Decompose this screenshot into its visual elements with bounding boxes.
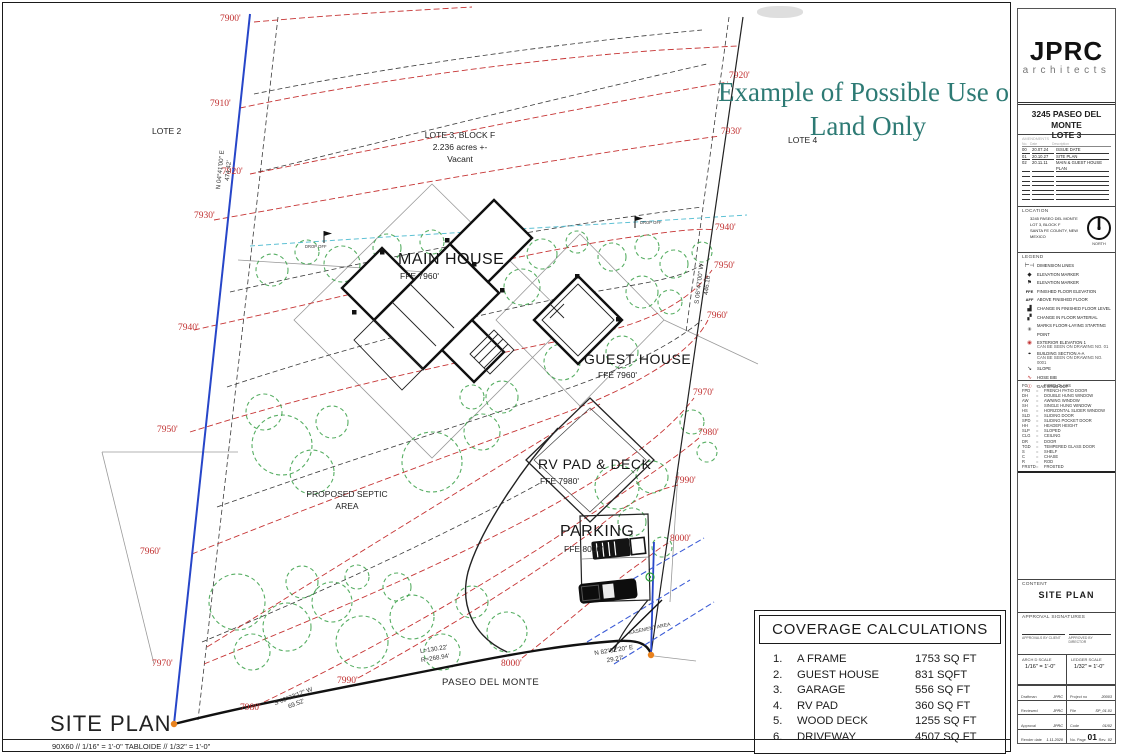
north-arrow-icon xyxy=(1086,215,1112,241)
lot3-label: LOTE 3, BLOCK F xyxy=(425,130,495,140)
rv-pad-label: RV PAD & DECK xyxy=(538,456,652,472)
main-house-ffe: FFE 7960' xyxy=(400,271,439,281)
abbreviation-row: FRSTD=FROSTED xyxy=(1022,464,1111,469)
bearing-southeast: N 82°52'20" E 29.27' xyxy=(594,643,635,666)
legend-item: ▟CHANGE IN FINISHED FLOOR LEVEL xyxy=(1022,305,1111,314)
legend-item: ⊢⊣DIMENSION LINES xyxy=(1022,262,1111,271)
legend-label: DIMENSION LINES xyxy=(1037,262,1074,271)
main-house-footprint xyxy=(342,200,532,390)
legend-item: ✳MARKS FLOOR-LAYING STARTING POINT xyxy=(1022,322,1111,339)
legend-label: MARKS FLOOR-LAYING STARTING POINT xyxy=(1037,322,1111,339)
contour-label: 7930' xyxy=(194,211,215,221)
page-number-row: No. Page 01 Rev. 02 xyxy=(1067,729,1115,744)
field-label: Approval xyxy=(1021,724,1036,728)
street-label: PASEO DEL MONTE xyxy=(442,677,539,688)
project-title: 3245 PASEO DEL MONTE LOTE 3 xyxy=(1018,105,1115,135)
firm-name: JPRC xyxy=(1030,36,1103,67)
amend-col-no: No. xyxy=(1022,142,1030,146)
coverage-row-area: 360 SQ FT xyxy=(915,699,1001,715)
scale2-label: LEDGER SCALE xyxy=(1071,657,1111,662)
field-row: ReviewedJPRC xyxy=(1018,700,1066,715)
coverage-row: 5.WOOD DECK1255 SQ FT xyxy=(759,714,1001,730)
field-value: 1.11.2020 xyxy=(1046,738,1063,742)
field-label: File xyxy=(1070,709,1076,713)
amendment-row: 0220.11.11MAIN & GUEST HOUSE PLAN xyxy=(1022,160,1111,172)
legend-item: ⚑ELEVATION MARKER xyxy=(1022,279,1111,288)
elevation-marker-alt-icon: ⚑ xyxy=(1022,279,1037,288)
coverage-row-item: A FRAME xyxy=(797,652,915,668)
bearing-southwest: S 69°23'12" W 69.52' xyxy=(273,685,317,715)
elevation-marker-icon: ◆ xyxy=(1022,271,1037,280)
contour-label: 7960' xyxy=(140,547,161,557)
field-value: JPRC xyxy=(1053,695,1063,699)
field-label: Draftman xyxy=(1021,695,1037,699)
content-title: CONTENT xyxy=(1022,582,1111,587)
coverage-row-area: 1753 SQ FT xyxy=(915,652,1001,668)
scale2-value: 1/32" = 1'-0" xyxy=(1074,664,1111,670)
contour-label: 8000' xyxy=(670,534,691,544)
amend-desc: SITE PLAN xyxy=(1056,154,1109,161)
amend-desc: MAIN & GUEST HOUSE PLAN xyxy=(1056,160,1109,172)
legend-label: ELEVATION MARKER xyxy=(1037,279,1079,288)
abbr-eq: = xyxy=(1036,464,1044,469)
rev-value: 02 xyxy=(1108,738,1112,742)
sheet-title: SITE PLAN xyxy=(50,711,171,737)
field-label: Code xyxy=(1070,724,1079,728)
bearing-length: 446.16' xyxy=(703,274,712,295)
contour-label: 7960' xyxy=(707,311,728,321)
amend-no: 00 xyxy=(1022,147,1030,154)
legend-sublabel: CAN BE SEEN ON DRAWING NO. 0001 xyxy=(1037,355,1102,365)
content-block: CONTENT SITE PLAN xyxy=(1018,579,1115,613)
aff-abbreviation: AFF xyxy=(1022,296,1037,305)
building-section-icon: ⌖ xyxy=(1022,352,1037,357)
contour-label: 7900' xyxy=(220,14,241,24)
smudge-artifact xyxy=(757,6,803,18)
amend-date: 20.07.24 xyxy=(1032,147,1054,154)
legend-label: FINISHED FLOOR ELEVATION xyxy=(1037,288,1096,297)
north-arrow: NORTH xyxy=(1086,215,1112,246)
coverage-row-number: 3. xyxy=(773,683,797,699)
legend-label: CHANGE IN FLOOR MATERIAL xyxy=(1037,314,1098,323)
lot3-acreage: 2.236 acres +- xyxy=(433,142,488,152)
floor-material-change-icon: ▞ xyxy=(1022,314,1037,323)
ffe-abbreviation: FFE xyxy=(1022,288,1037,297)
legend-item: ▞CHANGE IN FLOOR MATERIAL xyxy=(1022,314,1111,323)
legend-sublabel: CAN BE SEEN ON DRAWING NO. 01 xyxy=(1037,344,1108,349)
field-value: JPRC xyxy=(1053,724,1063,728)
coverage-row-item: WOOD DECK xyxy=(797,714,915,730)
legend-label: ELEVATION MARKER xyxy=(1037,271,1079,280)
approval-title: APPROVAL SIGNATURES xyxy=(1022,615,1111,620)
coverage-title: COVERAGE CALCULATIONS xyxy=(759,615,1001,644)
field-label: Render date xyxy=(1021,738,1042,742)
drop-off-flag: DROP OFF xyxy=(635,216,662,228)
guest-house-ffe: FFE 7960' xyxy=(598,370,637,380)
exterior-elevation-icon: ◉ xyxy=(1022,341,1037,346)
location-county: SANTA FE COUNTY, NEW MEXICO xyxy=(1030,228,1085,240)
coverage-row-item: GUEST HOUSE xyxy=(797,668,915,684)
firm-logo: JPRC architects xyxy=(1018,9,1115,105)
coverage-row: 4.RV PAD360 SQ FT xyxy=(759,699,1001,715)
drop-off-label: DROP OFF xyxy=(640,220,662,225)
coverage-row-area: 4507 SQ FT xyxy=(915,730,1001,746)
coverage-row-area: 831 SQFT xyxy=(915,668,1001,684)
property-boundaries xyxy=(171,14,743,727)
abbr-value: FROSTED xyxy=(1044,464,1111,469)
amendment-row: 0020.07.24ISSUE DATE xyxy=(1022,147,1111,154)
title-block: JPRC architects 3245 PASEO DEL MONTE LOT… xyxy=(1010,2,1123,752)
legend-label: ABOVE FINISHED FLOOR xyxy=(1037,296,1088,305)
amend-date: 20.11.11 xyxy=(1032,160,1054,172)
north-label: NORTH xyxy=(1086,242,1112,246)
lot3-status: Vacant xyxy=(447,154,473,164)
floor-level-change-icon: ▟ xyxy=(1022,305,1037,314)
coverage-row-area: 556 SQ FT xyxy=(915,683,1001,699)
scales-block: ARCH D SCALE 1/16" = 1'-0" LEDGER SCALE … xyxy=(1018,655,1115,685)
titleblock-spacer xyxy=(1018,473,1115,579)
floor-start-icon: ✳ xyxy=(1022,326,1037,335)
coverage-row: 6.DRIVEWAY4507 SQ FT xyxy=(759,730,1001,746)
contour-label: 7970' xyxy=(152,659,173,669)
field-value: JPRC xyxy=(1053,709,1063,713)
field-label: Project no xyxy=(1070,695,1087,699)
contour-label: 7950' xyxy=(714,261,735,271)
septic-area-label2: AREA xyxy=(335,501,358,511)
site-plan-sheet: { "banner": {"line1": "Example of Possib… xyxy=(0,0,1125,756)
slope-icon: ↘ xyxy=(1022,365,1037,374)
guest-house-label: GUEST HOUSE xyxy=(584,351,691,367)
sheet-scale-note: 90X60 // 1/16" = 1'-0" TABLOIDE // 1/32"… xyxy=(52,742,210,751)
amend-col-desc: Description xyxy=(1052,142,1111,146)
amend-desc: ISSUE DATE xyxy=(1056,147,1109,154)
content-value: SITE PLAN xyxy=(1022,590,1111,600)
legend-label: CHANGE IN FINISHED FLOOR LEVEL xyxy=(1037,305,1111,314)
legend-item: ◉EXTERIOR ELEVATION 1CAN BE SEEN ON DRAW… xyxy=(1022,339,1111,350)
coverage-row-item: DRIVEWAY xyxy=(797,730,915,746)
contour-label: 7910' xyxy=(210,99,231,109)
amendments-table: AMENDMENTS No. Date Description 0020.07.… xyxy=(1018,135,1115,207)
contour-label: 7980' xyxy=(240,703,261,713)
coverage-row: 2.GUEST HOUSE831 SQFT xyxy=(759,668,1001,684)
scale1-value: 1/16" = 1'-0" xyxy=(1025,664,1062,670)
contour-label: 7950' xyxy=(157,425,178,435)
coverage-row-number: 5. xyxy=(773,714,797,730)
approval-block: APPROVAL SIGNATURES APPROVALS BY CLIENT … xyxy=(1018,613,1115,655)
easement-text: EASEMENT AREA xyxy=(629,622,672,637)
contour-label: 7990' xyxy=(675,476,696,486)
coverage-row-item: GARAGE xyxy=(797,683,915,699)
field-value: 01/02 xyxy=(1102,724,1112,728)
amend-no: 01 xyxy=(1022,154,1030,161)
coverage-row-number: 2. xyxy=(773,668,797,684)
field-row: Render date1.11.2020 xyxy=(1018,729,1066,744)
legend-label: SLOPE xyxy=(1037,365,1051,374)
bearing-east: S 06°47'00" W 446.16' xyxy=(693,263,714,305)
contour-label: 7940' xyxy=(715,223,736,233)
lote2-label: LOTE 2 xyxy=(152,126,182,136)
amend-date: 20.10.27 xyxy=(1032,154,1054,161)
rev-label: Rev. xyxy=(1099,738,1107,742)
parking-ffe: FFE 8000' xyxy=(564,544,603,554)
coverage-row-number: 6. xyxy=(773,730,797,746)
bearing-length: 29.27' xyxy=(606,655,624,665)
abbreviations-block: FG=FIXED GLASS FPD=FRENCH PATIO DOOR DH=… xyxy=(1018,381,1115,473)
contour-label: 8000' xyxy=(501,659,522,669)
legend-title: LEGEND xyxy=(1022,255,1111,260)
coverage-row-item: RV PAD xyxy=(797,699,915,715)
rv-pad-ffe: FFE 7980' xyxy=(540,476,579,486)
contour-label: 7970' xyxy=(693,388,714,398)
dimension-lines-icon: ⊢⊣ xyxy=(1022,262,1037,271)
field-label: Reviewed xyxy=(1021,709,1038,713)
location-title: LOCATION xyxy=(1022,209,1111,214)
page-number: 01 xyxy=(1087,732,1096,742)
project-address: 3245 PASEO DEL MONTE xyxy=(1022,109,1111,130)
septic-area-label: PROPOSED SEPTIC xyxy=(306,489,387,499)
field-row: FileSP_01.01 xyxy=(1067,700,1115,715)
field-value: 20003 xyxy=(1101,695,1112,699)
page-label: No. Page xyxy=(1070,738,1086,742)
contour-label: 7980' xyxy=(698,428,719,438)
field-value: SP_01.01 xyxy=(1095,709,1112,713)
bearing-text: N 82°52'20" E xyxy=(594,643,634,657)
approval-client-line: APPROVALS BY CLIENT xyxy=(1022,634,1065,644)
approval-director-line: APPROVED BY DIRECTOR xyxy=(1069,634,1112,644)
amend-no: 02 xyxy=(1022,160,1030,172)
abbr-key: FRSTD xyxy=(1022,464,1036,469)
coverage-calculations-panel: COVERAGE CALCULATIONS 1.A FRAME1753 SQ F… xyxy=(754,610,1006,754)
amendment-row: 0120.10.27SITE PLAN xyxy=(1022,154,1111,161)
legend-item: ↘SLOPE xyxy=(1022,365,1111,374)
contour-label: 7940' xyxy=(178,323,199,333)
amend-col-date: Date xyxy=(1030,142,1052,146)
coverage-row: 3.GARAGE556 SQ FT xyxy=(759,683,1001,699)
coverage-row-number: 4. xyxy=(773,699,797,715)
fields-block: DraftmanJPRC ReviewedJPRC ApprovalJPRC R… xyxy=(1018,685,1115,743)
amendments-title: AMENDMENTS xyxy=(1022,137,1111,141)
banner-line2: Land Only xyxy=(718,110,1018,144)
legend-block: LEGEND ⊢⊣DIMENSION LINES ◆ELEVATION MARK… xyxy=(1018,253,1115,381)
field-row: Code01/02 xyxy=(1067,714,1115,729)
curve-data: L=130.22' R=268.94' xyxy=(419,644,450,664)
contour-label: 7990' xyxy=(337,676,358,686)
location-block: LOCATION 3245 PASEO DEL MONTE LOT 3, BLO… xyxy=(1018,207,1115,253)
coverage-row-area: 1255 SQ FT xyxy=(915,714,1001,730)
easement-label: EASEMENT AREA xyxy=(629,622,672,637)
legend-item: AFFABOVE FINISHED FLOOR xyxy=(1022,296,1111,305)
coverage-row: 1.A FRAME1753 SQ FT xyxy=(759,652,1001,668)
legend-item: ⌖BUILDING SECTION A-ACAN BE SEEN ON DRAW… xyxy=(1022,350,1111,365)
banner-note: Example of Possible Use of Land Only xyxy=(718,76,1018,144)
scale1-label: ARCH D SCALE xyxy=(1022,657,1062,662)
field-row: Project no20003 xyxy=(1067,685,1115,700)
field-row: DraftmanJPRC xyxy=(1018,685,1066,700)
main-house-label: MAIN HOUSE xyxy=(398,251,504,268)
parking-label: PARKING xyxy=(560,523,634,540)
bottom-rule xyxy=(2,739,1010,740)
legend-item: FFEFINISHED FLOOR ELEVATION xyxy=(1022,288,1111,297)
legend-item: ◆ELEVATION MARKER xyxy=(1022,271,1111,280)
field-row: ApprovalJPRC xyxy=(1018,714,1066,729)
amendment-row-empty xyxy=(1022,195,1111,200)
coverage-row-number: 1. xyxy=(773,652,797,668)
firm-subtitle: architects xyxy=(1023,65,1111,76)
banner-line1: Example of Possible Use of xyxy=(718,76,1018,110)
